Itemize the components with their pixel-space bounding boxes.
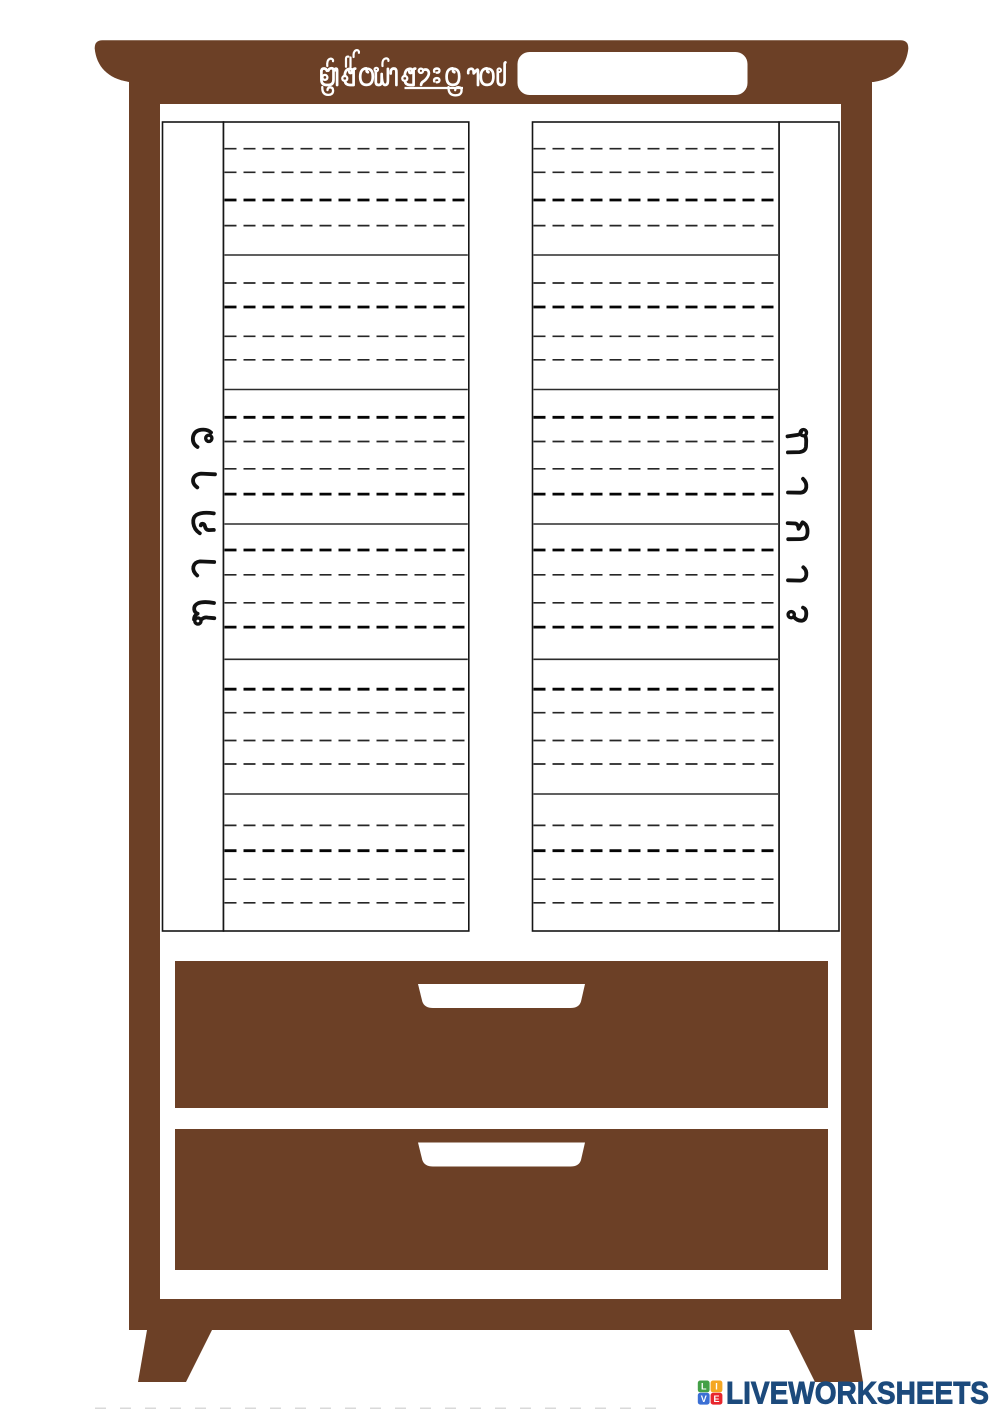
svg-text:LIVEWORKSHEETS: LIVEWORKSHEETS — [726, 1375, 989, 1411]
svg-text:E: E — [713, 1394, 719, 1404]
svg-text:L: L — [701, 1382, 707, 1392]
svg-text:V: V — [701, 1394, 707, 1404]
svg-text:I: I — [715, 1382, 718, 1392]
